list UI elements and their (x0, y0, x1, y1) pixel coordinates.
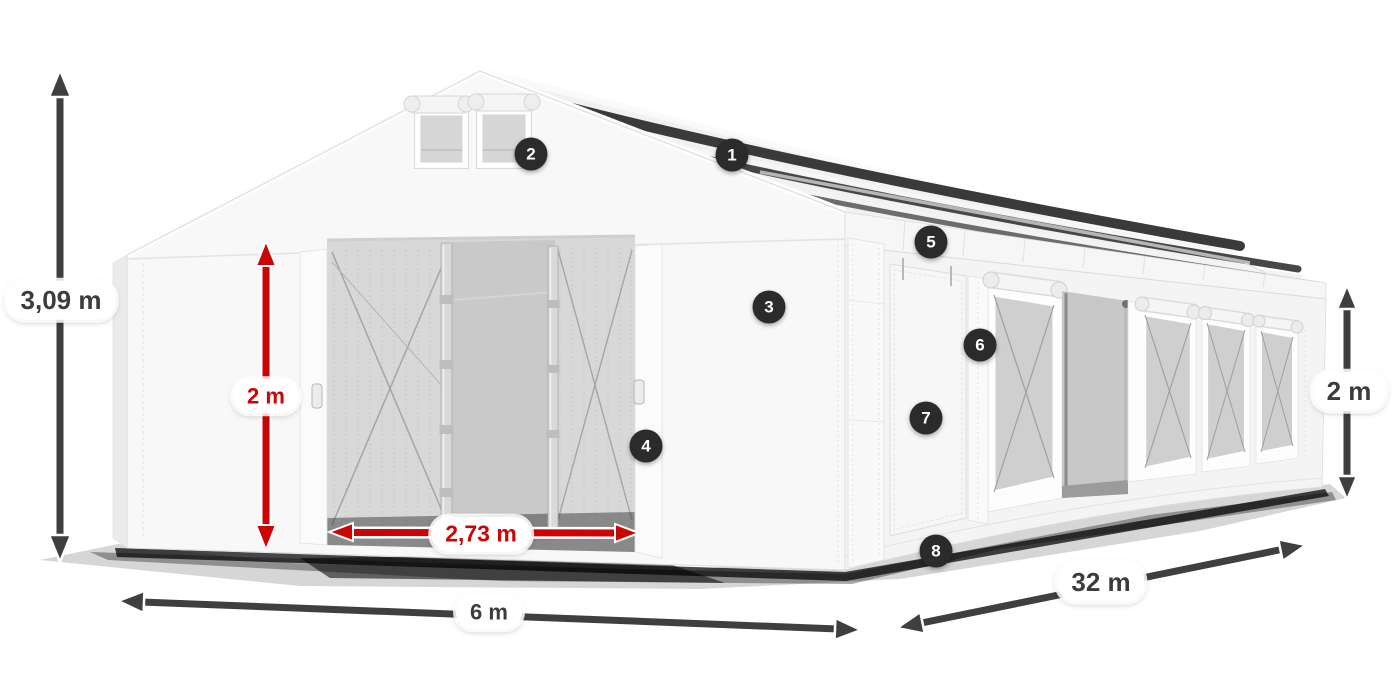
dim-label-side-height: 2 m (1313, 372, 1386, 411)
door-post-right (634, 244, 662, 558)
marker-5[interactable]: 5 (915, 226, 948, 259)
side-window-2 (1128, 297, 1201, 482)
dim-label-side-length: 32 m (1057, 563, 1144, 602)
dim-label-front-width: 6 m (456, 595, 522, 629)
gable-window-left (404, 96, 474, 169)
front-door-opening (327, 236, 635, 552)
marker-8[interactable]: 8 (920, 535, 953, 568)
corner-post (848, 238, 884, 568)
side-door-panel (890, 258, 966, 536)
side-window-1 (983, 272, 1067, 512)
marker-6[interactable]: 6 (964, 329, 997, 362)
tent-dimension-diagram: 3,09 m 2 m 2,73 m 6 m 32 m 2 m 1 2 3 4 5… (0, 0, 1400, 700)
marker-1[interactable]: 1 (716, 139, 749, 172)
side-window-4 (1253, 315, 1303, 464)
side-door-open-gap (1062, 291, 1130, 498)
dim-label-total-height: 3,09 m (7, 281, 116, 320)
marker-7[interactable]: 7 (910, 402, 943, 435)
marker-3[interactable]: 3 (753, 291, 786, 324)
marker-4[interactable]: 4 (630, 430, 663, 463)
tent-illustration (0, 0, 1400, 700)
door-post-left (300, 249, 327, 545)
side-window-3 (1199, 307, 1255, 473)
dim-label-door-height: 2 m (233, 379, 299, 413)
marker-2[interactable]: 2 (515, 138, 548, 171)
dim-label-door-width: 2,73 m (431, 517, 531, 552)
